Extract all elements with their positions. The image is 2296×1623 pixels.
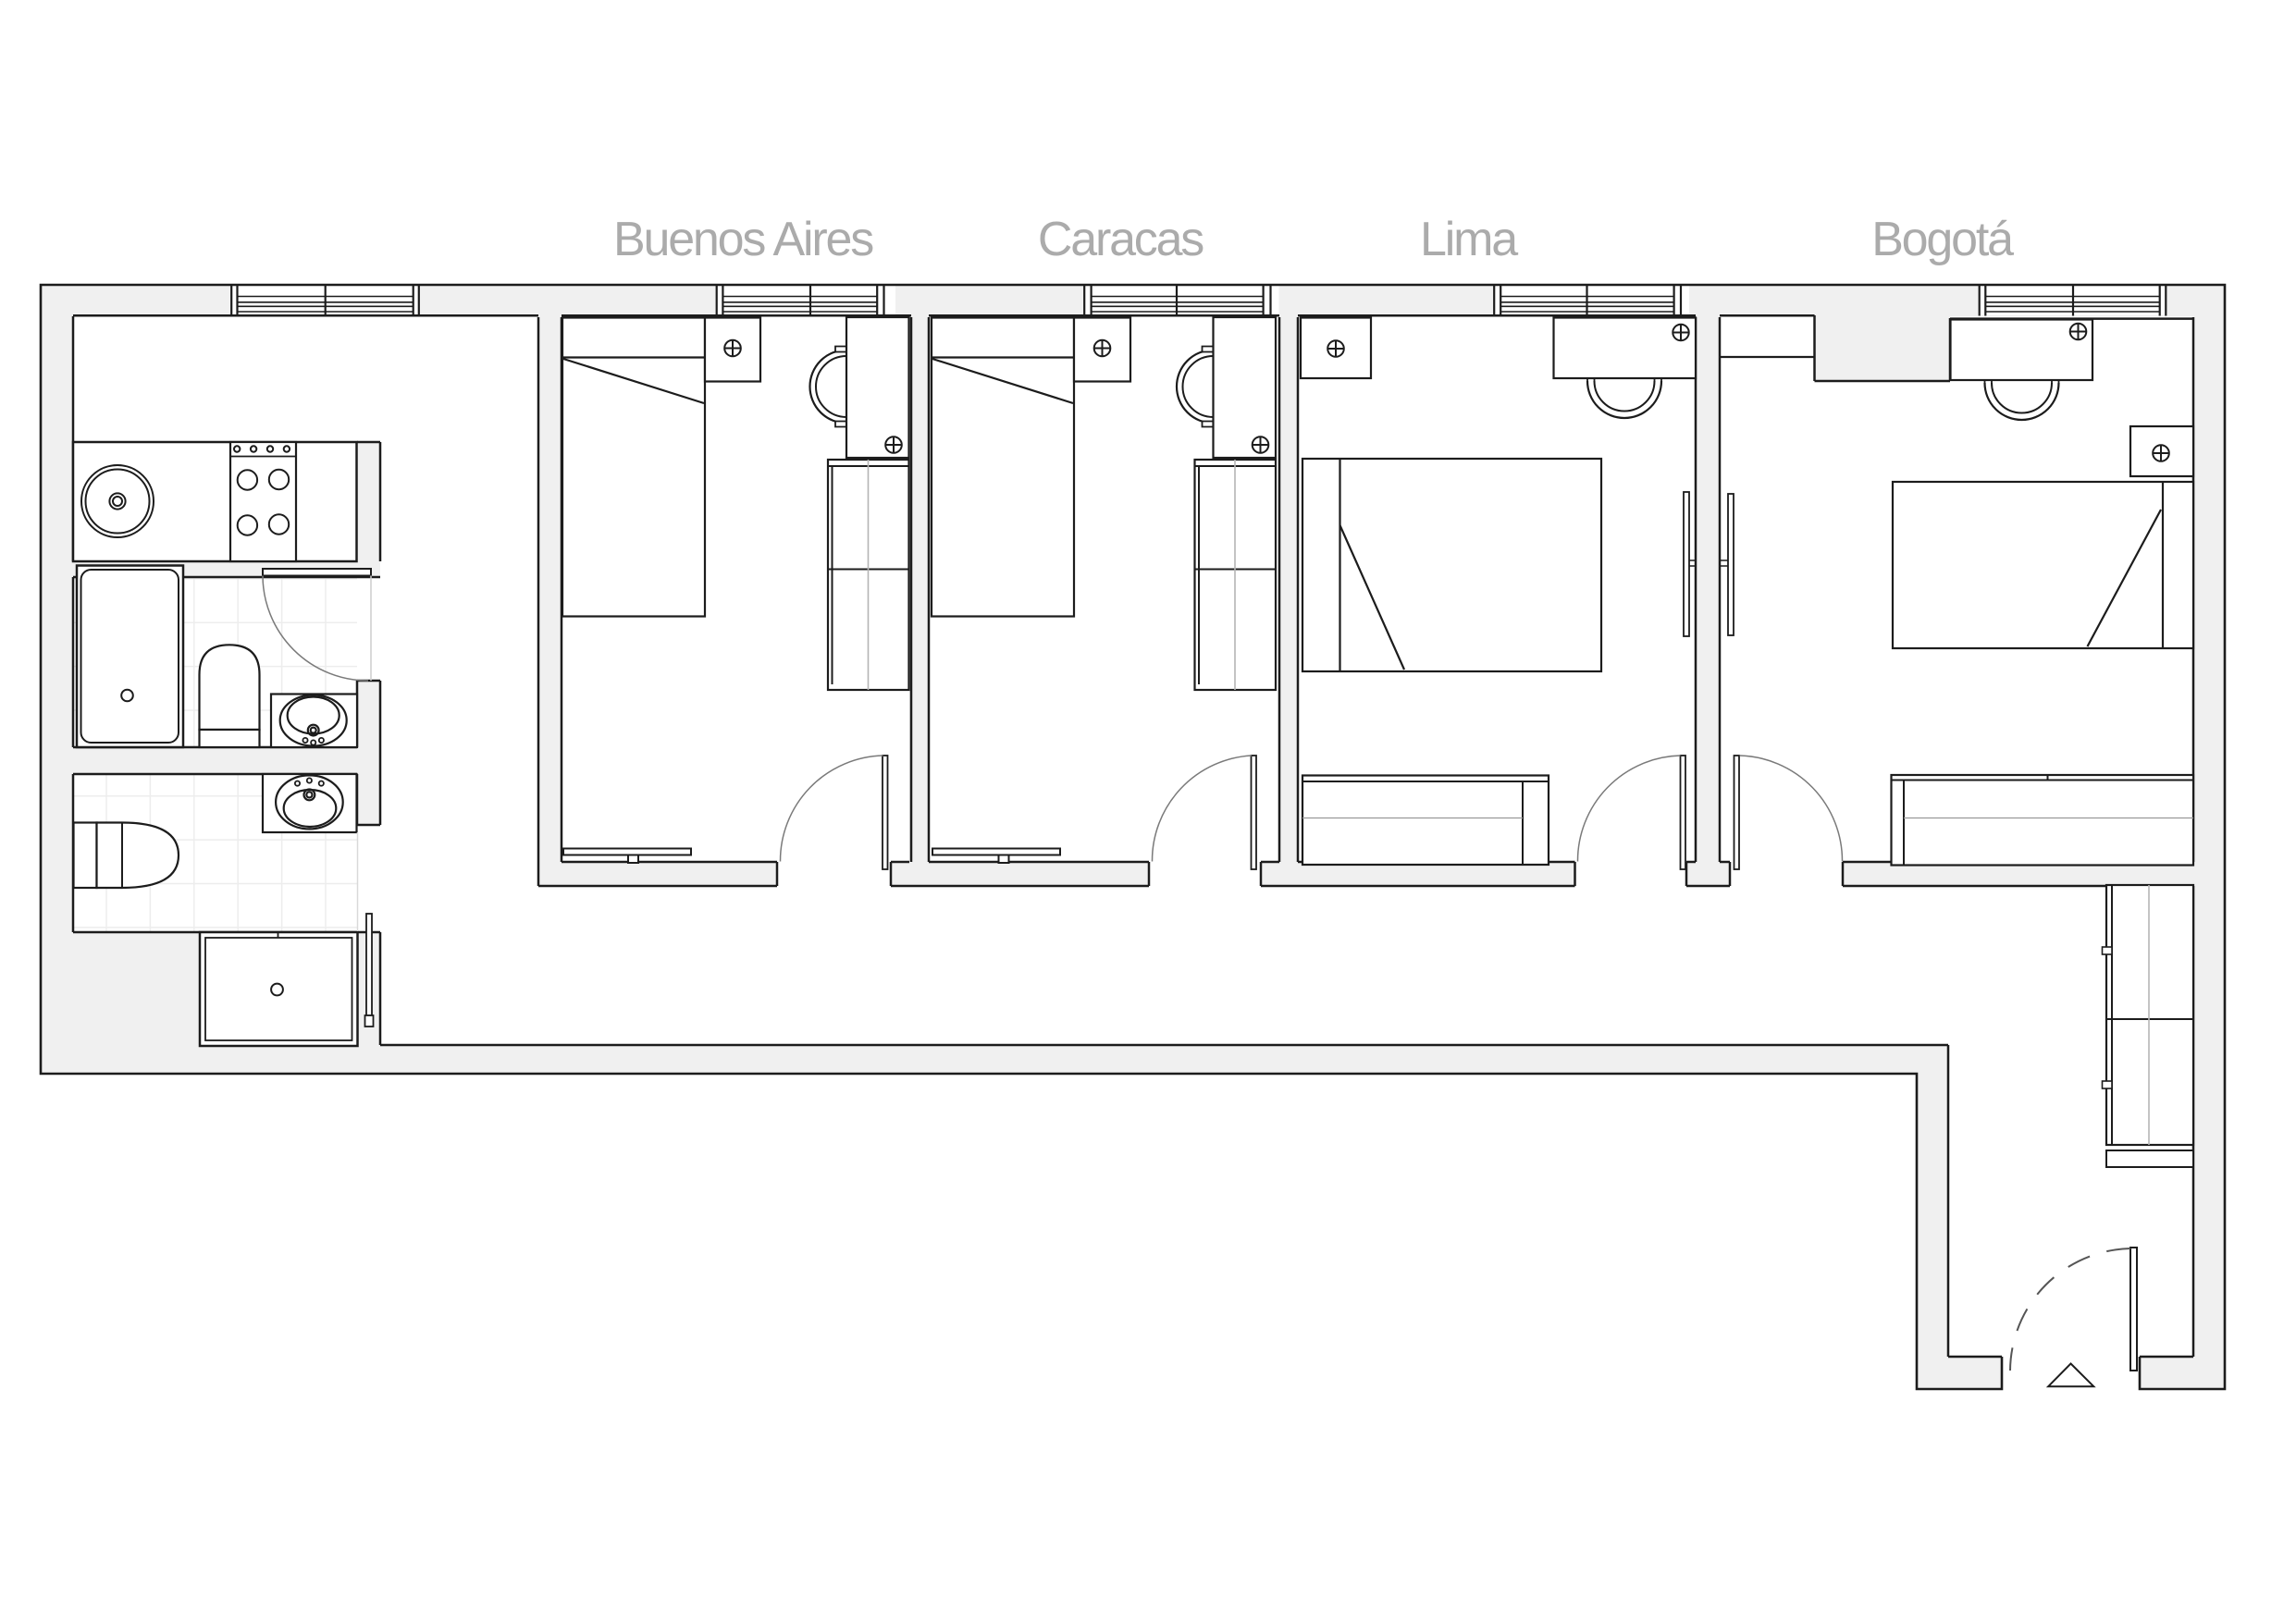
svg-text:Bogotá: Bogotá <box>1871 213 2014 266</box>
svg-text:Caracas: Caracas <box>1038 213 1204 266</box>
svg-text:Buenos Aires: Buenos Aires <box>613 213 873 266</box>
svg-text:Lima: Lima <box>1420 213 1518 266</box>
